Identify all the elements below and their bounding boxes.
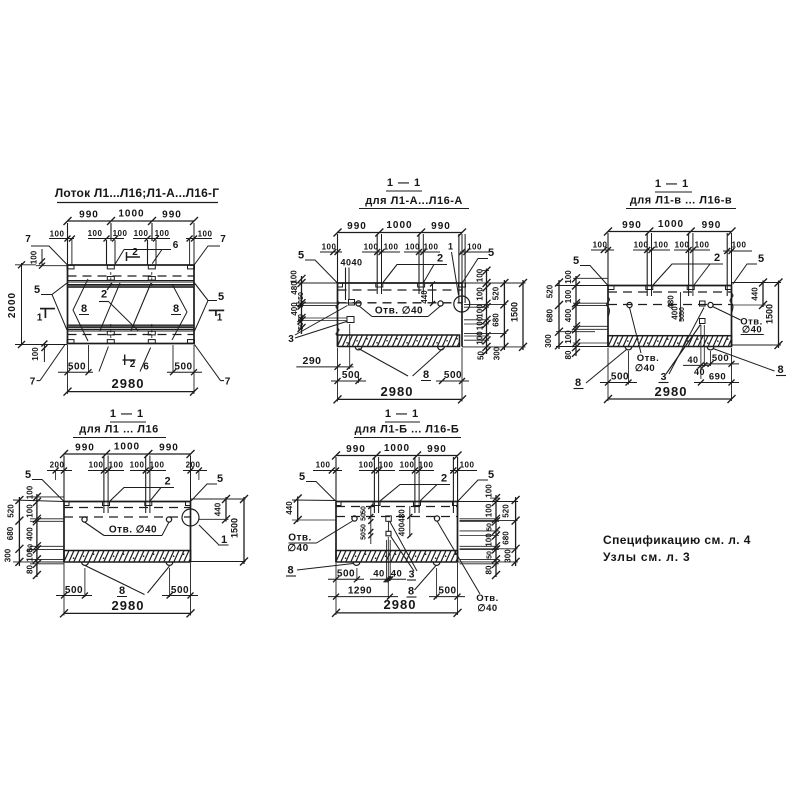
svg-text:100: 100 [564,289,573,303]
svg-text:5: 5 [573,255,579,267]
svg-text:8: 8 [287,565,293,577]
svg-text:80: 80 [485,565,494,574]
svg-text:1 — 1: 1 — 1 [655,178,689,190]
svg-text:7: 7 [225,377,231,388]
svg-text:2: 2 [130,359,136,370]
svg-text:1500: 1500 [510,302,520,322]
svg-text:520: 520 [7,504,16,518]
svg-text:500: 500 [337,569,355,580]
svg-text:440: 440 [285,501,294,515]
svg-text:7: 7 [25,234,31,245]
svg-text:680: 680 [546,308,555,322]
svg-text:50: 50 [298,322,305,330]
svg-text:400: 400 [26,527,35,541]
svg-text:100: 100 [695,241,710,250]
svg-text:50: 50 [361,513,368,521]
svg-text:100: 100 [198,230,213,239]
svg-text:500: 500 [65,585,83,596]
svg-text:100: 100 [400,461,415,470]
svg-text:2980: 2980 [384,597,417,612]
svg-text:для Л1 ... Л16: для Л1 ... Л16 [79,424,159,436]
svg-text:300: 300 [504,549,513,563]
svg-text:50: 50 [361,524,368,532]
svg-text:100: 100 [31,347,40,361]
svg-text:Узлы см. л. 3: Узлы см. л. 3 [603,550,690,564]
svg-text:990: 990 [622,220,642,231]
svg-text:100: 100 [476,316,485,330]
svg-text:1000: 1000 [384,443,410,454]
svg-text:1000: 1000 [658,219,684,230]
svg-text:5: 5 [25,469,31,481]
svg-text:500: 500 [444,370,462,381]
svg-text:8: 8 [575,377,581,389]
svg-text:680: 680 [492,313,501,327]
svg-text:1 — 1: 1 — 1 [110,408,144,420]
svg-text:100: 100 [89,461,104,470]
svg-text:∅40: ∅40 [477,603,497,614]
svg-text:1: 1 [221,534,227,546]
svg-text:990: 990 [347,221,367,232]
svg-text:5: 5 [34,284,40,296]
svg-text:100: 100 [50,230,65,239]
svg-text:100: 100 [130,461,145,470]
svg-text:2: 2 [164,476,170,488]
svg-text:2: 2 [437,253,443,265]
svg-text:100: 100 [654,241,669,250]
svg-text:2: 2 [714,252,720,264]
svg-text:500: 500 [171,585,189,596]
svg-text:520: 520 [502,504,511,518]
svg-text:100: 100 [485,503,494,517]
svg-text:2980: 2980 [112,598,145,613]
svg-text:1500: 1500 [230,518,240,538]
svg-text:100: 100 [134,229,149,238]
svg-text:для Л1-в ... Л16-в: для Л1-в ... Л16-в [630,195,732,207]
svg-text:8: 8 [81,303,87,315]
svg-text:3: 3 [661,371,667,383]
svg-text:400: 400 [398,522,407,536]
svg-text:100: 100 [476,331,485,345]
svg-text:50: 50 [487,551,494,559]
svg-text:Отв.: Отв. [288,533,312,544]
svg-text:100: 100 [316,461,331,470]
svg-text:∅40: ∅40 [287,543,308,554]
svg-text:990: 990 [159,443,179,454]
svg-text:80: 80 [564,350,573,359]
svg-text:8: 8 [173,303,179,315]
svg-text:8: 8 [423,369,429,381]
svg-text:50: 50 [361,506,368,514]
svg-text:400: 400 [564,308,573,322]
svg-text:990: 990 [702,220,722,231]
svg-text:500: 500 [712,353,729,364]
svg-text:690: 690 [709,372,726,383]
svg-text:1: 1 [37,313,43,324]
svg-text:100: 100 [364,243,379,252]
svg-text:50: 50 [487,523,494,531]
svg-text:1 — 1: 1 — 1 [385,408,419,420]
svg-text:100: 100 [88,229,103,238]
svg-text:2000: 2000 [7,292,18,318]
svg-text:500: 500 [174,362,192,373]
svg-text:5: 5 [758,253,764,265]
svg-text:5: 5 [488,469,494,481]
svg-text:50: 50 [477,351,486,360]
svg-text:990: 990 [427,444,447,455]
svg-text:1500: 1500 [765,304,775,324]
svg-text:8: 8 [777,364,783,376]
svg-text:990: 990 [79,210,99,221]
svg-text:100: 100 [155,229,170,238]
svg-text:5: 5 [488,247,494,259]
svg-text:∅40: ∅40 [742,325,762,336]
svg-text:50: 50 [298,300,305,308]
svg-text:3: 3 [288,334,294,345]
svg-text:40: 40 [694,367,705,377]
svg-text:100: 100 [485,533,494,547]
svg-text:100: 100 [467,243,482,252]
svg-text:680: 680 [6,526,15,540]
svg-text:500: 500 [438,586,456,597]
svg-text:100: 100 [476,287,485,301]
svg-text:100: 100 [485,484,494,498]
svg-text:40: 40 [391,569,403,580]
svg-text:480: 480 [398,509,407,523]
svg-text:500: 500 [611,372,629,383]
svg-text:500: 500 [342,370,360,381]
svg-text:для Л1-А...Л16-А: для Л1-А...Л16-А [365,195,463,207]
svg-text:990: 990 [75,443,95,454]
svg-text:100: 100 [26,548,35,562]
svg-text:8: 8 [119,585,125,597]
svg-text:∅40: ∅40 [635,363,655,374]
svg-text:100: 100 [634,241,649,250]
svg-text:1000: 1000 [118,209,144,220]
svg-text:100: 100 [384,243,399,252]
svg-text:8: 8 [408,586,414,598]
svg-text:Отв. ∅40: Отв. ∅40 [109,525,157,536]
svg-text:2980: 2980 [112,376,145,391]
svg-text:4040: 4040 [340,258,362,268]
svg-text:7: 7 [30,377,36,388]
svg-text:520: 520 [546,284,555,298]
svg-text:440: 440 [214,502,223,516]
svg-text:для Л1-Б ... Л16-Б: для Л1-Б ... Л16-Б [355,424,460,436]
svg-text:300: 300 [4,548,13,562]
svg-text:100: 100 [405,243,420,252]
svg-text:1000: 1000 [114,442,140,453]
svg-text:5: 5 [298,250,304,262]
svg-text:Лоток Л1...Л16;Л1-А...Л16-Г: Лоток Л1...Л16;Л1-А...Л16-Г [55,186,219,200]
svg-text:1: 1 [217,313,223,324]
svg-text:40: 40 [687,355,698,365]
svg-text:100: 100 [26,485,35,499]
svg-text:2: 2 [101,289,107,301]
svg-text:100: 100 [460,461,475,470]
svg-text:520: 520 [492,286,501,300]
svg-text:300: 300 [493,346,502,360]
svg-text:440: 440 [751,287,760,301]
svg-text:1000: 1000 [386,220,412,231]
svg-text:440: 440 [420,290,429,304]
svg-text:50: 50 [298,314,305,322]
svg-text:1290: 1290 [348,586,372,597]
svg-text:5: 5 [218,291,224,303]
svg-text:2980: 2980 [381,384,414,399]
svg-text:500: 500 [68,362,86,373]
svg-text:2: 2 [441,473,447,485]
svg-text:5: 5 [299,471,305,483]
svg-text:2980: 2980 [655,384,688,399]
svg-text:100: 100 [564,270,573,284]
svg-text:680: 680 [502,531,511,545]
svg-text:7: 7 [220,234,226,245]
svg-text:50: 50 [298,292,305,300]
svg-text:1: 1 [448,242,453,252]
svg-text:5: 5 [217,473,223,485]
svg-text:100: 100 [359,461,374,470]
svg-text:990: 990 [162,210,182,221]
svg-text:1 — 1: 1 — 1 [387,177,421,189]
svg-text:2: 2 [132,247,138,258]
svg-text:100: 100 [26,504,35,518]
svg-text:100: 100 [113,229,128,238]
svg-text:80: 80 [26,565,35,574]
svg-text:300: 300 [544,334,553,348]
svg-text:100: 100 [564,330,573,344]
svg-text:6: 6 [173,240,179,251]
svg-text:50: 50 [361,532,368,540]
svg-text:100: 100 [476,304,485,318]
svg-text:990: 990 [431,221,451,232]
svg-text:100: 100 [30,250,39,264]
svg-text:290: 290 [302,355,321,367]
svg-text:Спецификацию см. л. 4: Спецификацию см. л. 4 [603,533,751,547]
svg-text:Отв. ∅40: Отв. ∅40 [375,306,423,317]
svg-text:990: 990 [346,444,366,455]
svg-text:100: 100 [675,241,690,250]
svg-text:100: 100 [476,268,485,282]
svg-text:40: 40 [373,569,385,580]
